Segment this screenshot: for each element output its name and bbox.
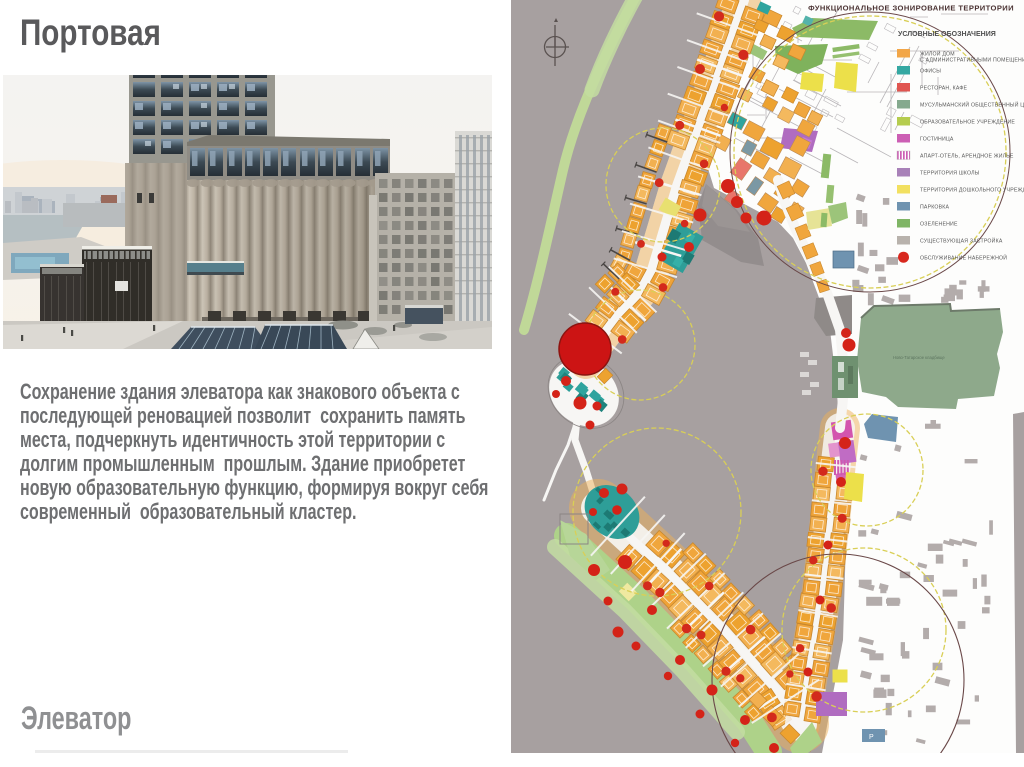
svg-text:С АДМИНИСТРАТИВНЫМИ ПОМЕЩЕНИЯМ: С АДМИНИСТРАТИВНЫМИ ПОМЕЩЕНИЯМИ [920, 58, 1024, 64]
svg-text:УСЛОВНЫЕ ОБОЗНАЧЕНИЯ: УСЛОВНЫЕ ОБОЗНАЧЕНИЯ [898, 31, 996, 38]
svg-text:СУЩЕСТВУЮЩАЯ ЗАСТРОЙКА: СУЩЕСТВУЮЩАЯ ЗАСТРОЙКА [920, 237, 1003, 245]
svg-text:РЕСТОРАН, КАФЕ: РЕСТОРАН, КАФЕ [920, 86, 968, 92]
svg-text:АПАРТ-ОТЕЛЬ, АРЕНДНОЕ ЖИЛЬЕ: АПАРТ-ОТЕЛЬ, АРЕНДНОЕ ЖИЛЬЕ [920, 154, 1014, 160]
svg-text:ТЕРРИТОРИЯ ШКОЛЫ: ТЕРРИТОРИЯ ШКОЛЫ [920, 171, 980, 177]
svg-text:ОБСЛУЖИВАНИЕ НАБЕРЕЖНОЙ: ОБСЛУЖИВАНИЕ НАБЕРЕЖНОЙ [920, 254, 1007, 262]
svg-text:Ново-Татарское кладбище: Ново-Татарское кладбище [893, 355, 945, 360]
svg-text:ФУНКЦИОНАЛЬНОЕ ЗОНИРОВАНИЕ ТЕР: ФУНКЦИОНАЛЬНОЕ ЗОНИРОВАНИЕ ТЕРРИТОРИИ [808, 4, 1014, 13]
svg-text:ЖИЛОЙ ДОМ: ЖИЛОЙ ДОМ [920, 50, 955, 58]
svg-text:МУСУЛЬМАНСКИЙ ОБЩЕСТВЕННЫЙ ЦЕН: МУСУЛЬМАНСКИЙ ОБЩЕСТВЕННЫЙ ЦЕНТР [920, 101, 1024, 109]
svg-text:ГОСТИНИЦА: ГОСТИНИЦА [920, 137, 954, 143]
svg-text:ТЕРРИТОРИЯ ДОШКОЛЬНОГО УЧРЕЖДЕ: ТЕРРИТОРИЯ ДОШКОЛЬНОГО УЧРЕЖДЕНИЯ [920, 188, 1024, 194]
svg-text:ОЗЕЛЕНЕНИЕ: ОЗЕЛЕНЕНИЕ [920, 222, 958, 228]
svg-text:ОФИСЫ: ОФИСЫ [920, 69, 941, 75]
svg-text:ПАРКОВКА: ПАРКОВКА [920, 205, 950, 211]
svg-text:P: P [869, 734, 874, 741]
svg-text:ОБРАЗОВАТЕЛЬНОЕ УЧРЕЖДЕНИЕ: ОБРАЗОВАТЕЛЬНОЕ УЧРЕЖДЕНИЕ [920, 120, 1015, 126]
